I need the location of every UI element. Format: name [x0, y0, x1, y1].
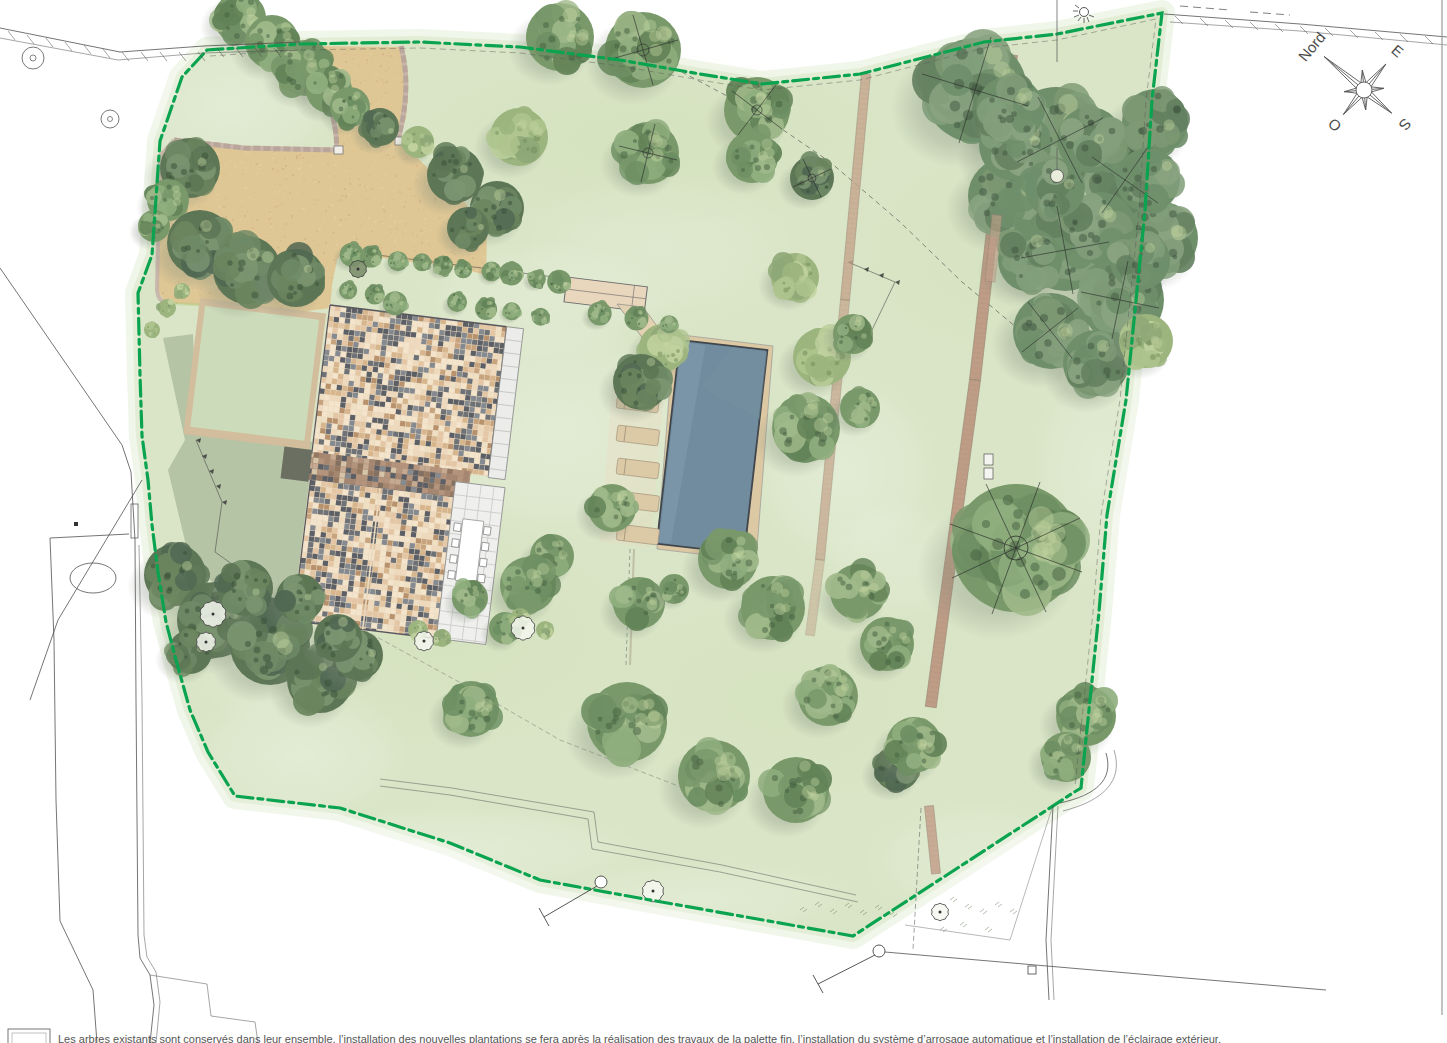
svg-text:O: O — [1325, 115, 1345, 136]
svg-text:Nord: Nord — [1295, 29, 1329, 65]
svg-text:E: E — [1388, 41, 1407, 60]
svg-text:S: S — [1395, 115, 1414, 134]
svg-text:Les arbres existants sont cons: Les arbres existants sont conservés dans… — [58, 1033, 1221, 1043]
